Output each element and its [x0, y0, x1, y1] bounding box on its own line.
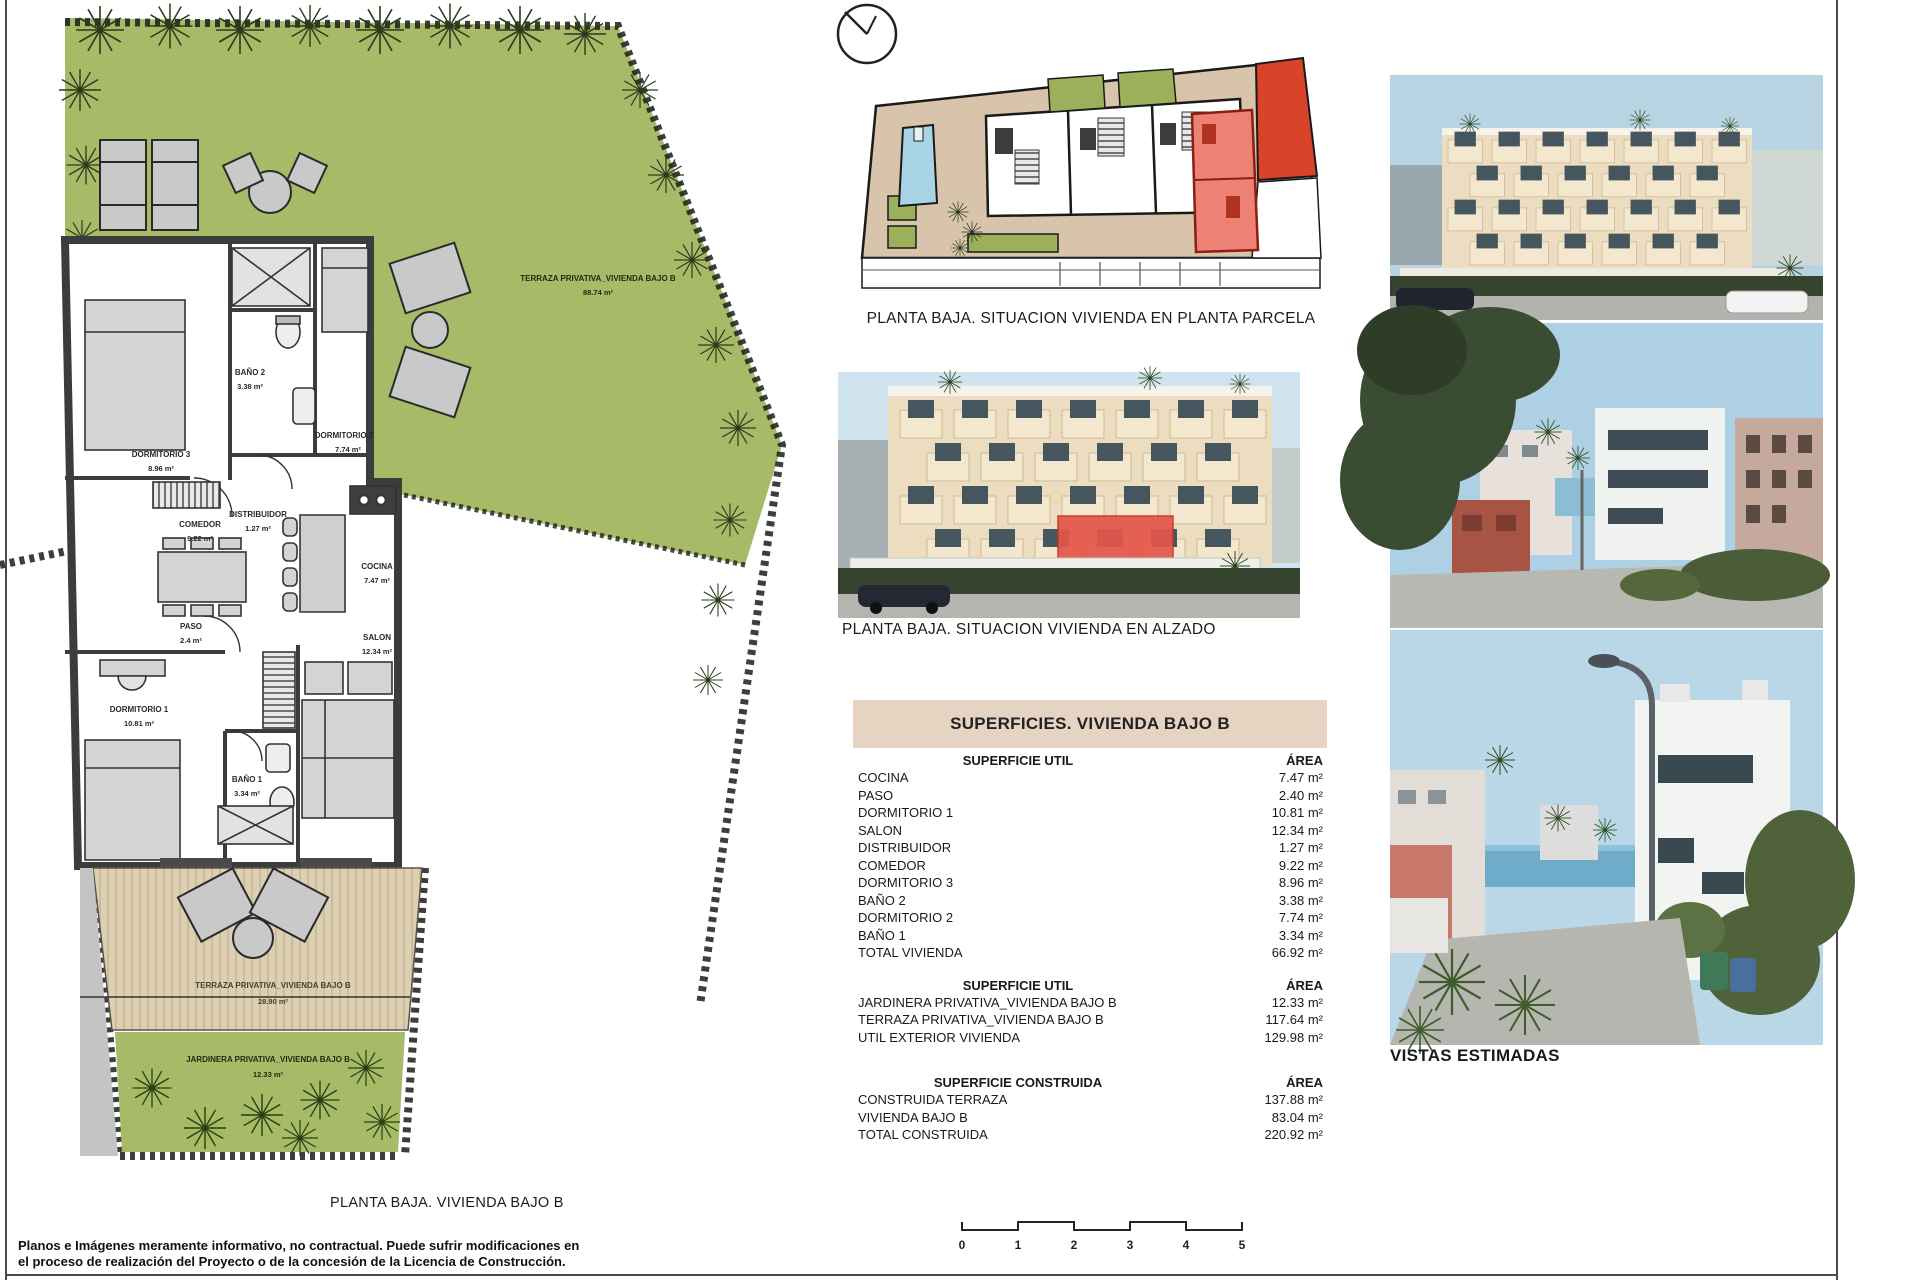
table-row: CONSTRUIDA TERRAZA137.88 m²: [853, 1091, 1327, 1109]
photo-building-render: [1390, 75, 1823, 320]
row-label: TOTAL VIVIENDA: [853, 944, 1227, 962]
siteplan-red-unit: [1192, 110, 1258, 252]
row-label: UTIL EXTERIOR VIVIENDA: [853, 1029, 1227, 1047]
row-value: 83.04 m²: [1227, 1109, 1327, 1127]
row-label: JARDINERA PRIVATIVA_VIVIENDA BAJO B: [853, 994, 1227, 1012]
row-label: BAÑO 2: [853, 892, 1227, 910]
room-dormitorio2-area: 7.74 m²: [335, 445, 361, 454]
garden-area: 88.74 m²: [583, 288, 614, 297]
room-cocina-label: COCINA: [361, 562, 393, 571]
siteplan-caption: PLANTA BAJA. SITUACION VIVIENDA EN PLANT…: [860, 310, 1322, 328]
row-label: TERRAZA PRIVATIVA_VIVIENDA BAJO B: [853, 1011, 1227, 1029]
room-bano1-label: BAÑO 1: [232, 775, 263, 784]
table-row: TERRAZA PRIVATIVA_VIVIENDA BAJO B117.64 …: [853, 1011, 1327, 1029]
surface-section-exterior: SUPERFICIE UTIL ÁREA JARDINERA PRIVATIVA…: [853, 977, 1327, 1047]
table-row: TOTAL VIVIENDA66.92 m²: [853, 944, 1327, 962]
terrace-label: TERRAZA PRIVATIVA_VIVIENDA BAJO B: [195, 981, 351, 990]
scale-0: 0: [959, 1238, 966, 1252]
room-dormitorio1-area: 10.81 m²: [124, 719, 155, 728]
siteplan-red-garden: [1256, 58, 1317, 180]
room-salon-area: 12.34 m²: [362, 647, 393, 656]
photos-caption: VISTAS ESTIMADAS: [1390, 1046, 1560, 1066]
section-header-row: SUPERFICIE UTIL ÁREA: [853, 977, 1327, 994]
room-comedor-label: COMEDOR: [179, 520, 221, 529]
room-bano1-area: 3.34 m²: [234, 789, 260, 798]
scale-2: 2: [1071, 1238, 1078, 1252]
section-header: SUPERFICIE CONSTRUIDA: [853, 1074, 1183, 1091]
row-value: 117.64 m²: [1227, 1011, 1327, 1029]
table-row: BAÑO 13.34 m²: [853, 927, 1327, 945]
scale-bar: 0 1 2 3 4 5: [959, 1222, 1246, 1252]
row-label: TOTAL CONSTRUIDA: [853, 1126, 1227, 1144]
disclaimer-line-2: el proceso de realización del Proyecto o…: [18, 1254, 579, 1270]
elevation-caption: PLANTA BAJA. SITUACION VIVIENDA EN ALZAD…: [842, 621, 1216, 639]
area-header: ÁREA: [1183, 1074, 1327, 1091]
row-value: 2.40 m²: [1227, 787, 1327, 805]
row-value: 66.92 m²: [1227, 944, 1327, 962]
table-row: TOTAL CONSTRUIDA220.92 m²: [853, 1126, 1327, 1144]
disclaimer-line-1: Planos e Imágenes meramente informativo,…: [18, 1238, 579, 1254]
row-label: COMEDOR: [853, 857, 1227, 875]
elevation-render: [838, 366, 1300, 618]
room-bano2-area: 3.38 m²: [237, 382, 263, 391]
siteplan: [862, 58, 1321, 288]
room-bano2-label: BAÑO 2: [235, 368, 266, 377]
garden-label: TERRAZA PRIVATIVA_VIVIENDA BAJO B: [520, 274, 676, 283]
table-row: JARDINERA PRIVATIVA_VIVIENDA BAJO B12.33…: [853, 994, 1327, 1012]
row-value: 7.47 m²: [1227, 769, 1327, 787]
row-value: 3.34 m²: [1227, 927, 1327, 945]
jardinera-area: 12.33 m²: [253, 1070, 284, 1079]
section-header: SUPERFICIE UTIL: [853, 752, 1183, 769]
row-label: DORMITORIO 1: [853, 804, 1227, 822]
table-row: DISTRIBUIDOR1.27 m²: [853, 839, 1327, 857]
table-row: VIVIENDA BAJO B83.04 m²: [853, 1109, 1327, 1127]
row-value: 137.88 m²: [1227, 1091, 1327, 1109]
row-value: 3.38 m²: [1227, 892, 1327, 910]
floorplan: TERRAZA PRIVATIVA_VIVIENDA BAJO B 88.74 …: [0, 4, 782, 1157]
scale-5: 5: [1239, 1238, 1246, 1252]
room-comedor-area: 9.22 m²: [187, 534, 213, 543]
room-dormitorio3-label: DORMITORIO 3: [132, 450, 191, 459]
row-value: 8.96 m²: [1227, 874, 1327, 892]
row-value: 10.81 m²: [1227, 804, 1327, 822]
jardinera-label: JARDINERA PRIVATIVA_VIVIENDA BAJO B: [186, 1055, 350, 1064]
room-paso-area: 2.4 m²: [180, 636, 202, 645]
row-label: DORMITORIO 3: [853, 874, 1227, 892]
row-label: DORMITORIO 2: [853, 909, 1227, 927]
row-label: SALON: [853, 822, 1227, 840]
room-distribuidor-label: DISTRIBUIDOR: [229, 510, 287, 519]
north-compass-icon: [838, 5, 896, 63]
room-dormitorio1-label: DORMITORIO 1: [110, 705, 169, 714]
area-header: ÁREA: [1183, 752, 1327, 769]
table-row: COMEDOR9.22 m²: [853, 857, 1327, 875]
room-salon-label: SALON: [363, 633, 391, 642]
row-value: 9.22 m²: [1227, 857, 1327, 875]
scale-3: 3: [1127, 1238, 1134, 1252]
row-value: 1.27 m²: [1227, 839, 1327, 857]
table-row: UTIL EXTERIOR VIVIENDA129.98 m²: [853, 1029, 1327, 1047]
row-value: 220.92 m²: [1227, 1126, 1327, 1144]
table-row: DORMITORIO 27.74 m²: [853, 909, 1327, 927]
row-label: COCINA: [853, 769, 1227, 787]
row-value: 12.34 m²: [1227, 822, 1327, 840]
section-header-row: SUPERFICIE UTIL ÁREA: [853, 752, 1327, 769]
table-row: DORMITORIO 38.96 m²: [853, 874, 1327, 892]
photo-sea-view: [1390, 630, 1855, 1054]
section-header: SUPERFICIE UTIL: [853, 977, 1183, 994]
room-dormitorio3-area: 8.96 m²: [148, 464, 174, 473]
scale-1: 1: [1015, 1238, 1022, 1252]
row-label: CONSTRUIDA TERRAZA: [853, 1091, 1227, 1109]
room-cocina-area: 7.47 m²: [364, 576, 390, 585]
table-row: DORMITORIO 110.81 m²: [853, 804, 1327, 822]
table-row: BAÑO 23.38 m²: [853, 892, 1327, 910]
room-dormitorio2-label: DORMITORIO 2: [315, 431, 374, 440]
surface-table: SUPERFICIES. VIVIENDA BAJO B SUPERFICIE …: [853, 700, 1327, 1144]
disclaimer: Planos e Imágenes meramente informativo,…: [18, 1238, 579, 1270]
terrace-area: 28.90 m²: [258, 997, 289, 1006]
row-label: BAÑO 1: [853, 927, 1227, 945]
table-row: SALON12.34 m²: [853, 822, 1327, 840]
row-value: 129.98 m²: [1227, 1029, 1327, 1047]
row-value: 7.74 m²: [1227, 909, 1327, 927]
row-label: PASO: [853, 787, 1227, 805]
row-value: 12.33 m²: [1227, 994, 1327, 1012]
row-label: DISTRIBUIDOR: [853, 839, 1227, 857]
table-row: COCINA7.47 m²: [853, 769, 1327, 787]
surface-table-title: SUPERFICIES. VIVIENDA BAJO B: [853, 700, 1327, 748]
surface-section-util: SUPERFICIE UTIL ÁREA COCINA7.47 m² PASO2…: [853, 752, 1327, 962]
surface-section-construida: SUPERFICIE CONSTRUIDA ÁREA CONSTRUIDA TE…: [853, 1074, 1327, 1144]
photo-street-view: [1340, 305, 1830, 628]
row-label: VIVIENDA BAJO B: [853, 1109, 1227, 1127]
section-header-row: SUPERFICIE CONSTRUIDA ÁREA: [853, 1074, 1327, 1091]
room-paso-label: PASO: [180, 622, 202, 631]
scale-4: 4: [1183, 1238, 1190, 1252]
table-row: PASO2.40 m²: [853, 787, 1327, 805]
floorplan-caption: PLANTA BAJA. VIVIENDA BAJO B: [330, 1195, 564, 1211]
room-distribuidor-area: 1.27 m²: [245, 524, 271, 533]
area-header: ÁREA: [1183, 977, 1327, 994]
